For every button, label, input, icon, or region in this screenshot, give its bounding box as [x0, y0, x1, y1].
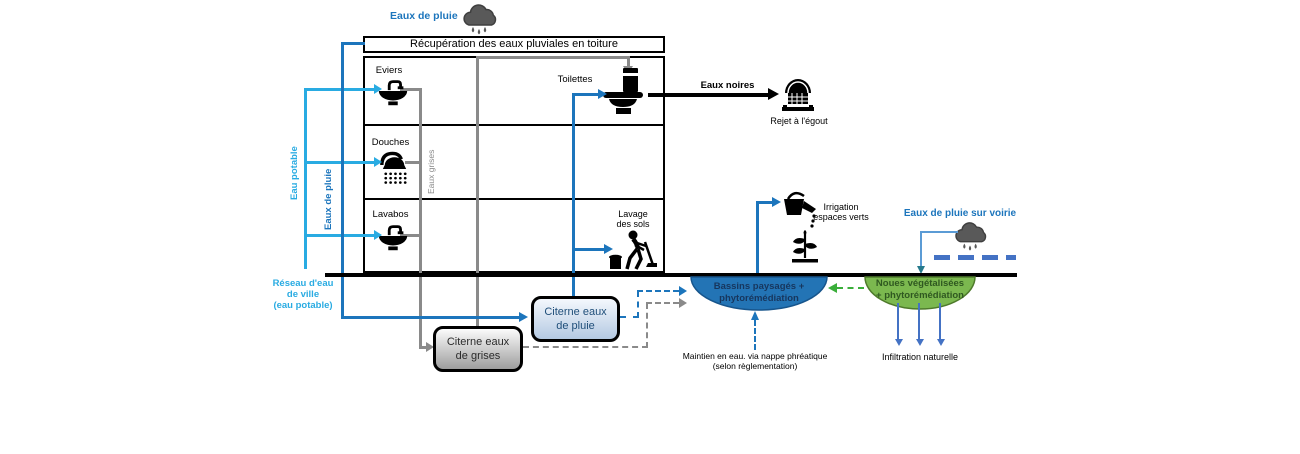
infiltration-arrow-3: [937, 339, 945, 346]
greywater-riser-pipe: [419, 88, 422, 348]
rainpipe-lavage-h: [572, 248, 604, 251]
infiltration-line-3: [939, 303, 941, 339]
rainpipe-to-tank-h: [341, 316, 519, 319]
greywater-tank-label-1: Citerne eaux: [436, 335, 520, 349]
irrigation-label-2: espaces verts: [806, 212, 876, 222]
swale-overflow-dash: [837, 287, 864, 289]
eaux-noires-label: Eaux noires: [690, 81, 765, 92]
voirie-pipe-h: [920, 231, 958, 233]
potable-douches-arrow: [374, 157, 382, 167]
potable-vertical-label: Eau potable: [289, 142, 300, 204]
rainwater-tank-label-1: Citerne eaux: [534, 305, 617, 319]
irrigation-label-1: Irrigation: [806, 202, 876, 212]
potable-douches-pipe: [304, 161, 374, 164]
greywater-tank-inlet-pipe: [419, 346, 426, 349]
shower-icon: [377, 148, 412, 186]
rainpipe-toilet-riser: [572, 95, 575, 297]
infiltration-arrow-1: [895, 339, 903, 346]
roof-recovery-box: Récupération des eaux pluviales en toitu…: [363, 36, 665, 53]
rainpipe-main-v: [341, 42, 344, 319]
maintien-label-2: (selon règlementation): [655, 362, 855, 372]
potable-eviers-arrow: [374, 84, 382, 94]
road-dash-3: [982, 255, 998, 260]
road-dash-2: [958, 255, 974, 260]
greywater-roofline-pipe: [476, 56, 630, 59]
mop-person-icon: [606, 229, 658, 271]
voirie-pipe-v: [920, 231, 922, 267]
potable-lavabos-pipe: [304, 234, 374, 237]
reseau-label-3: (eau potable): [263, 301, 343, 312]
greywater-overflow-dash-h2: [646, 302, 679, 304]
basin-label-1: Bassins paysagés +: [690, 282, 828, 293]
greywater-toilet-drop-pipe: [627, 56, 630, 66]
potable-eviers-pipe: [304, 88, 374, 91]
groundwater-dash-v: [754, 320, 756, 350]
eviers-label: Eviers: [364, 66, 414, 77]
sewer-arrowhead: [768, 88, 779, 100]
raintank-overflow-dash-h2: [637, 290, 679, 292]
lavabos-label: Lavabos: [363, 210, 418, 221]
rainwater-tank: Citerne eaux de pluie: [531, 296, 620, 342]
lavage-sols-label-2: des sols: [603, 219, 663, 229]
greywater-tank: Citerne eaux de grises: [433, 326, 523, 372]
basin-label-2: phytorémédiation: [690, 294, 828, 305]
irrigation-pipe-v: [756, 203, 759, 277]
rainpipe-lavage-arrow: [604, 244, 613, 254]
rainpipe-toilet-h: [572, 93, 598, 96]
swale-label-1: Noues végétalisées: [864, 279, 976, 290]
raintank-overflow-dash-v: [637, 291, 639, 318]
rainpipe-toilet-arrow: [598, 89, 607, 99]
swale-label-2: + phytorémédiation: [864, 291, 976, 302]
toilettes-label: Toilettes: [551, 75, 599, 86]
potable-main-pipe: [304, 88, 307, 269]
voirie-cloud-icon: [950, 221, 990, 253]
plant-icon: [790, 226, 820, 266]
rejet-egout-label: Rejet à l'égout: [760, 116, 838, 126]
rain-cloud-icon: [458, 3, 500, 37]
lavage-sols-label-1: Lavage: [603, 209, 663, 219]
rainpipe-tank-arrow: [519, 312, 528, 322]
greywater-tank-label-2: de grises: [436, 349, 520, 363]
irrigation-pipe-h: [756, 201, 772, 204]
potable-lavabos-arrow: [374, 230, 382, 240]
road-dash-4: [1006, 255, 1016, 260]
floor-line-2: [363, 198, 665, 200]
raintank-overflow-arrow: [679, 286, 687, 296]
infiltration-arrow-2: [916, 339, 924, 346]
floor-line-1: [363, 124, 665, 126]
diagram-canvas: Eaux de pluie Récupération des eaux pluv…: [0, 0, 1300, 454]
swale-overflow-arrow-left: [828, 283, 837, 293]
voirie-label: Eaux de pluie sur voirie: [900, 208, 1020, 220]
eaux-grises-vertical-label: Eaux grises: [426, 141, 436, 203]
greywater-supply-riser: [476, 56, 479, 327]
greywater-overflow-dash-v: [646, 303, 648, 348]
infiltration-line-1: [897, 303, 899, 339]
greywater-overflow-arrow: [679, 298, 687, 308]
sewer-arrow-line: [648, 93, 768, 97]
roof-recovery-label: Récupération des eaux pluviales en toitu…: [365, 38, 663, 51]
greywater-overflow-dash-h1: [523, 346, 648, 348]
rain-top-label: Eaux de pluie: [390, 10, 452, 22]
sewer-drain-icon: [780, 74, 816, 116]
infiltration-label: Infiltration naturelle: [858, 352, 982, 362]
road-dash-1: [934, 255, 950, 260]
toilet-icon: [601, 66, 645, 116]
rainpipe-roof-h: [341, 42, 365, 45]
rainpipe-vertical-label: Eaux de pluie: [323, 166, 334, 232]
rainwater-tank-label-2: de pluie: [534, 319, 617, 333]
infiltration-line-2: [918, 303, 920, 339]
